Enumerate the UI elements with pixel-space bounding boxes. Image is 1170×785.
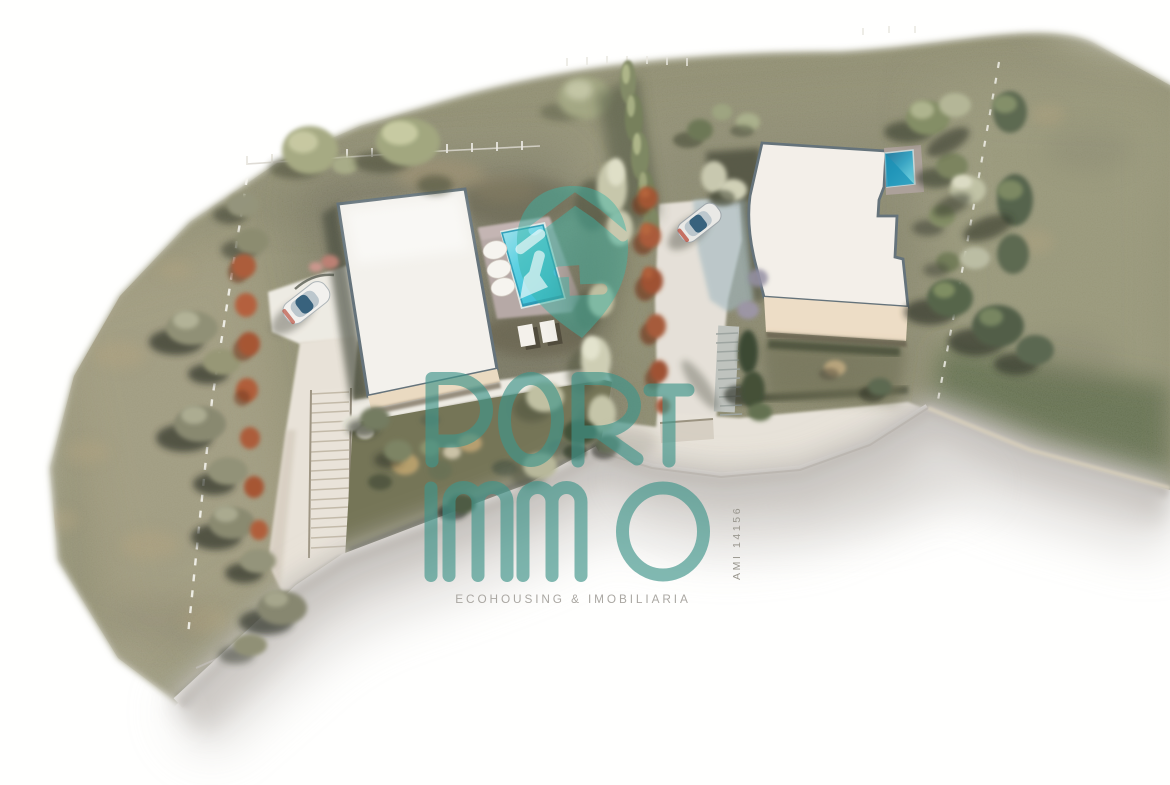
svg-text:ECOHOUSING & IMOBILIARIA: ECOHOUSING & IMOBILIARIA [455,592,690,606]
svg-text:AMI 14156: AMI 14156 [731,506,743,580]
